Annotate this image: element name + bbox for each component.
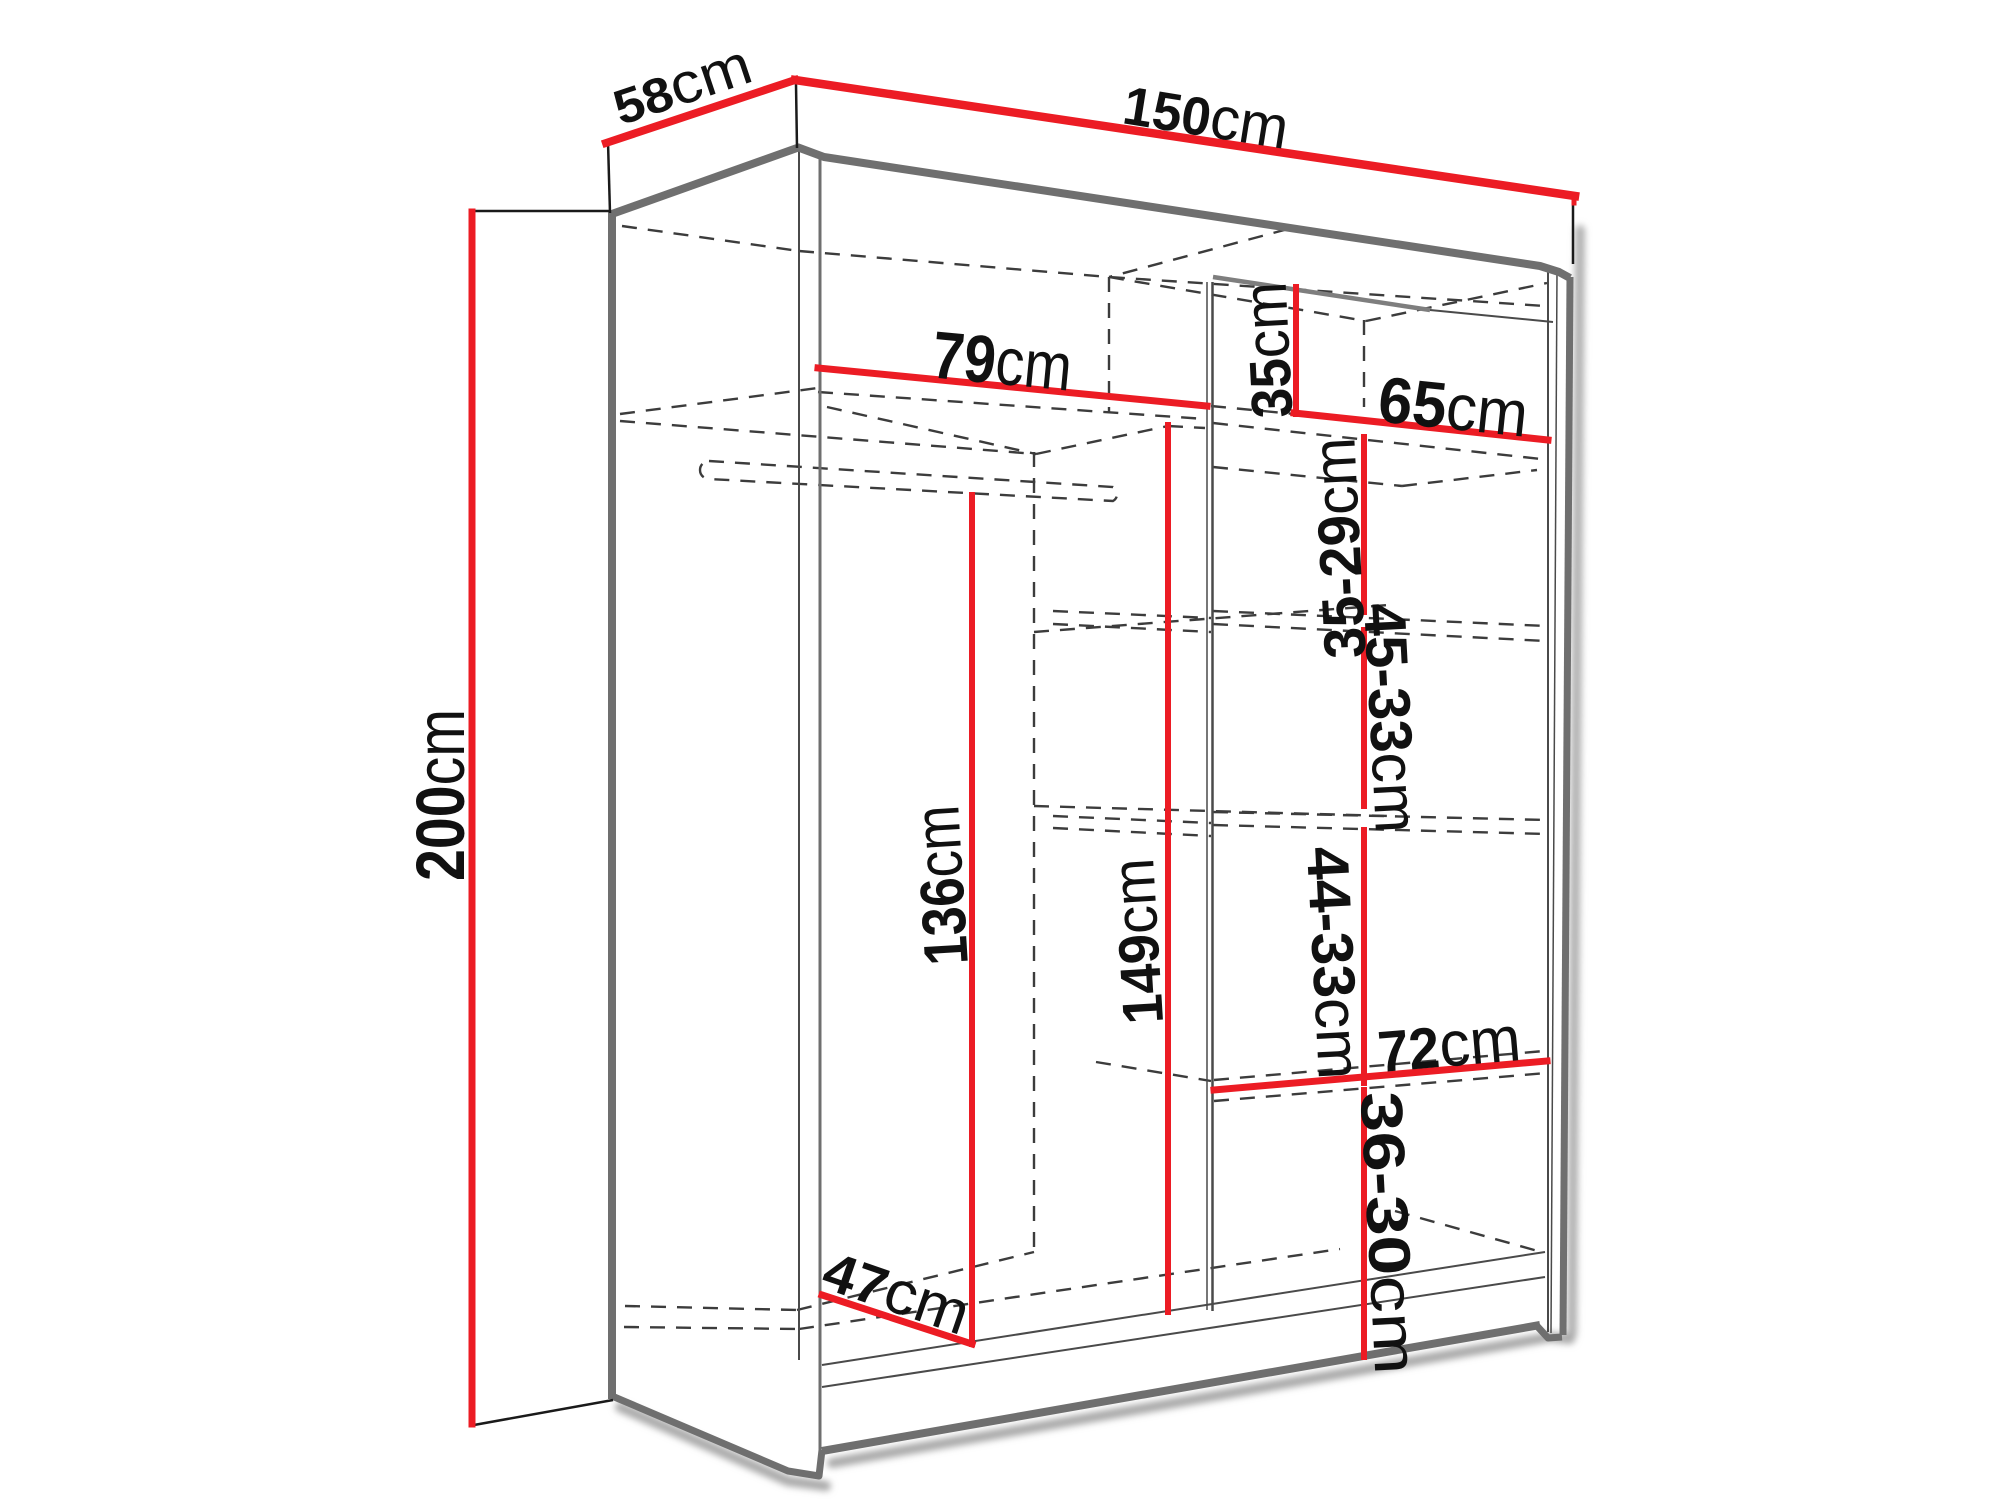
- svg-text:45-33cm: 45-33cm: [1351, 601, 1431, 834]
- svg-text:79cm: 79cm: [929, 318, 1076, 406]
- svg-text:136cm: 136cm: [900, 803, 982, 967]
- svg-text:149cm: 149cm: [1099, 856, 1176, 1026]
- svg-text:35cm: 35cm: [1231, 280, 1307, 419]
- svg-text:44-33cm: 44-33cm: [1294, 845, 1374, 1081]
- svg-text:200cm: 200cm: [402, 709, 479, 881]
- svg-text:65cm: 65cm: [1375, 362, 1532, 450]
